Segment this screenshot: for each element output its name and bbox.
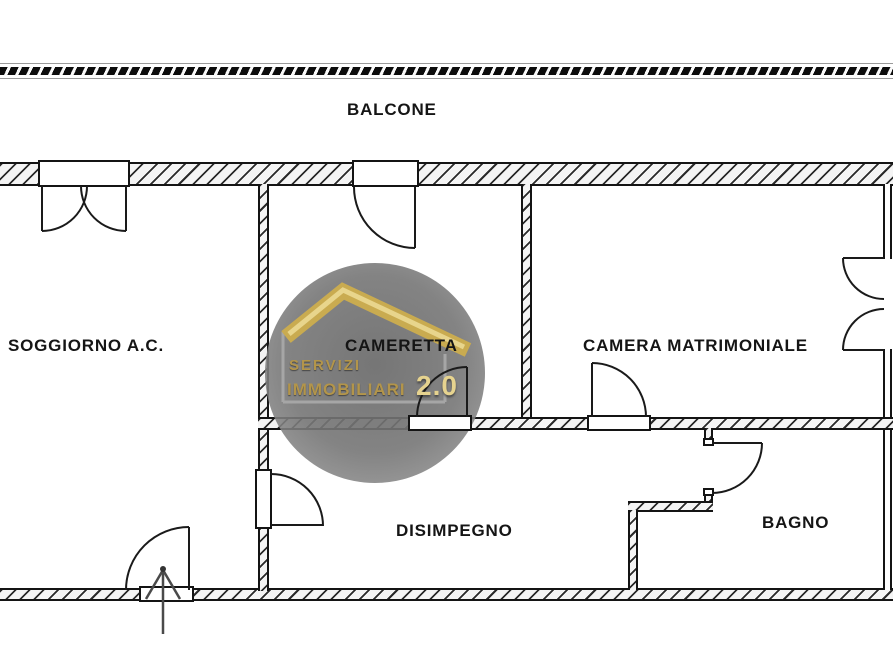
door-soggiorno-disimpegno: [271, 474, 323, 526]
door-matrimoniale-disimpegno: [592, 363, 646, 417]
wall-bagno-step: [628, 501, 713, 512]
french-window-soggiorno-balcone: [38, 160, 130, 187]
french-door-soggiorno: [42, 185, 126, 231]
room-label-bagno: BAGNO: [762, 513, 829, 533]
door-opening-cameretta-balcone: [352, 160, 419, 187]
door-jamb-bagno-bottom: [703, 488, 714, 496]
entrance-door: [126, 527, 189, 590]
watermark-line1: SERVIZI: [289, 357, 361, 374]
room-label-cameretta: CAMERETTA: [345, 336, 458, 356]
door-opening-soggiorno-disimpegno: [255, 469, 272, 529]
door-opening-entrance: [139, 586, 194, 602]
balcony-railing: [0, 63, 893, 79]
wall-cameretta-matrimoniale: [521, 184, 532, 420]
balcony-railing-hatch: [0, 67, 893, 75]
watermark-version: 2.0: [416, 370, 458, 402]
exterior-right-wall-lower: [883, 349, 892, 590]
door-opening-cameretta-disimpegno: [408, 415, 472, 431]
door-cameretta-balcone: [354, 187, 415, 248]
floorplan-canvas: SERVIZI IMMOBILIARI 2.0 BALCONE SOGGIORN…: [0, 0, 893, 670]
door-jamb-bagno-top: [703, 438, 714, 446]
exterior-top-wall: [0, 162, 893, 186]
door-opening-matrimoniale-disimpegno: [587, 415, 651, 431]
door-bagno: [712, 443, 762, 493]
room-label-soggiorno: SOGGIORNO A.C.: [8, 336, 164, 356]
wall-bagno-left-lower: [628, 510, 638, 590]
room-label-balcone: BALCONE: [347, 100, 437, 120]
room-label-camera-matrimoniale: CAMERA MATRIMONIALE: [583, 336, 808, 356]
exterior-right-wall-upper: [883, 184, 892, 259]
exterior-bottom-wall: [0, 588, 893, 601]
room-label-disimpegno: DISIMPEGNO: [396, 521, 513, 541]
watermark-line2: IMMOBILIARI: [287, 380, 406, 400]
french-door-matrimoniale: [843, 258, 884, 350]
